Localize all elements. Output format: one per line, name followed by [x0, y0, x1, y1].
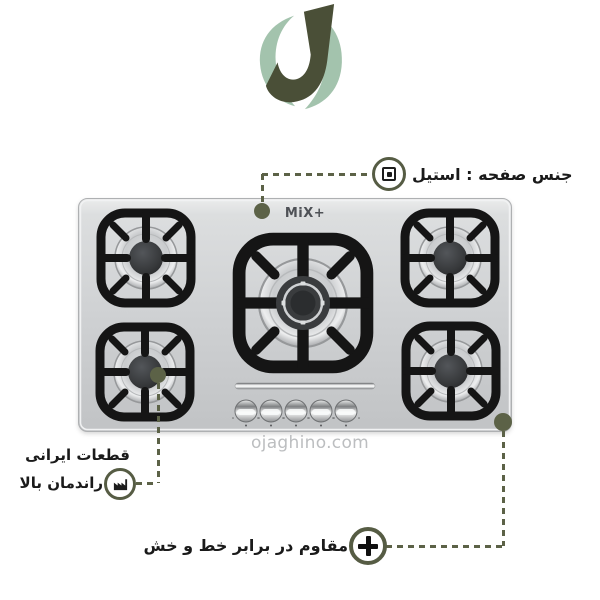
surface-callout-badge	[372, 157, 406, 191]
callout-dot-parts	[150, 367, 166, 383]
handle-bar	[235, 383, 375, 389]
watermark: ojaghino.com	[250, 433, 370, 453]
high-efficiency-label: راندمان بالا	[20, 472, 103, 494]
cooktop-brand: MiX+	[285, 206, 325, 221]
callout-line-surface-h	[262, 173, 372, 176]
burner-top-left	[101, 213, 191, 303]
brand-logo-icon	[248, 4, 352, 116]
parts-callout-badge	[104, 468, 136, 500]
burner-bottom-left	[100, 327, 190, 417]
burner-top-right	[405, 213, 495, 303]
burner-center-detail	[276, 276, 330, 330]
iranian-parts-label: قطعات ایرانی	[25, 444, 130, 466]
surface-material-label: جنس صفحه : استیل	[412, 164, 573, 186]
product-showcase: MiX+ ojaghino.c	[0, 0, 600, 600]
callout-line-scratch-h	[386, 545, 503, 548]
factory-icon	[112, 476, 129, 493]
double-square-icon	[382, 167, 396, 181]
callout-dot-surface	[254, 203, 270, 219]
callout-line-scratch-v	[502, 431, 505, 546]
scratch-callout-badge	[349, 527, 387, 565]
callout-line-parts-v	[157, 383, 160, 483]
callout-line-surface-v	[261, 174, 264, 205]
brand-logo	[248, 4, 352, 116]
plus-icon	[358, 536, 378, 556]
cooktop-image: MiX+	[78, 198, 512, 432]
burner-bottom-right	[406, 326, 496, 416]
scratch-resistant-label: مقاوم در برابر خط و خش	[143, 535, 348, 557]
callout-line-parts-h	[136, 482, 158, 485]
callout-dot-scratch	[494, 413, 512, 431]
